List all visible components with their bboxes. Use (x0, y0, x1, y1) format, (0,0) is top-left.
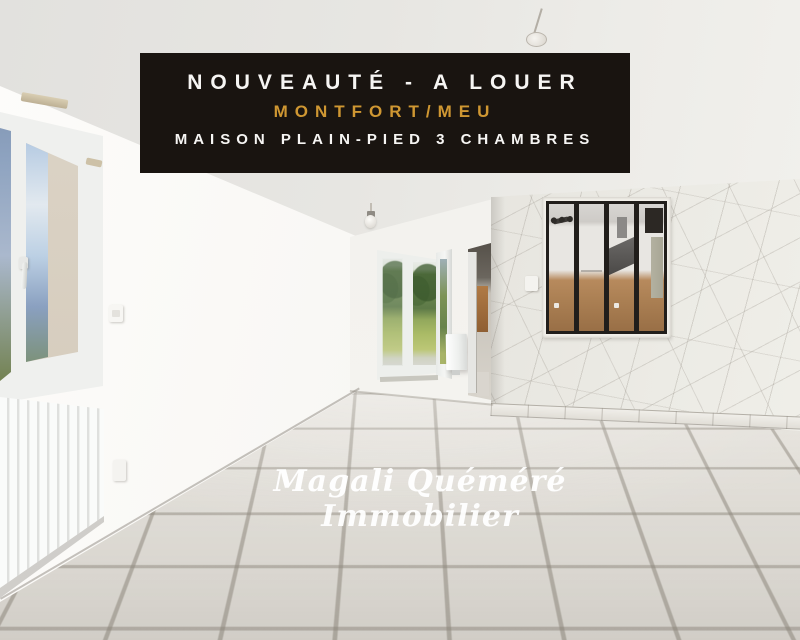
listing-banner: NOUVEAUTÉ - A LOUER MONTFORT/MEU MAISON … (140, 53, 630, 173)
kitchen-extractor-hood (609, 237, 634, 275)
verriere-pane-4 (639, 204, 664, 331)
ceiling-rose (526, 32, 547, 47)
verriere-pane-1 (549, 204, 574, 331)
photo-scene: Magali Quéméré Immobilier NOUVEAUTÉ - A … (0, 0, 800, 640)
radiator-back-wall (446, 334, 468, 370)
radiator-back-bracket (452, 370, 460, 375)
banner-title: NOUVEAUTÉ - A LOUER (140, 69, 630, 96)
banner-property-type: MAISON PLAIN-PIED 3 CHAMBRES (140, 128, 630, 152)
doorway-floor (477, 372, 489, 396)
kitchen-outlet (554, 303, 559, 308)
doorway-wood-cabinet (477, 286, 488, 332)
kitchen-hood-duct (617, 217, 627, 239)
wall-corner-shadow (491, 197, 505, 409)
french-door-open-gap-garden-view (413, 262, 436, 365)
power-outlet (113, 460, 126, 481)
kitchen-spotlight-icon (552, 216, 568, 224)
kitchen-upper-cabinet (645, 208, 663, 233)
verriere-pane-3 (609, 204, 634, 331)
kitchen-tall-cabinet (651, 237, 663, 298)
interior-window-black-frame (546, 201, 667, 334)
verriere-pane-2 (579, 204, 604, 331)
agency-watermark: Magali Quéméré Immobilier (230, 464, 610, 534)
banner-location: MONTFORT/MEU (140, 99, 630, 125)
pendant-bulb (365, 215, 376, 228)
kitchen-outlet (614, 303, 619, 308)
light-switch (109, 305, 123, 322)
french-door-fixed-pane-garden-view (382, 258, 403, 366)
doorway-door-leaf (468, 252, 477, 393)
kitchen-cabinet-line (581, 270, 602, 272)
thermostat (525, 276, 538, 291)
